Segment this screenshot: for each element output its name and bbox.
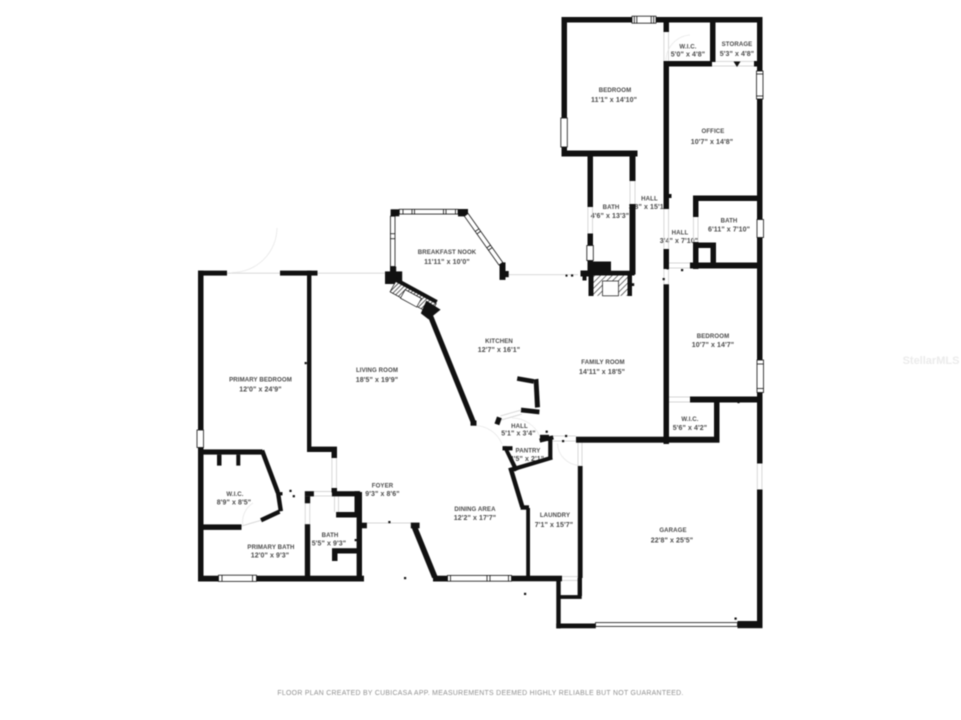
svg-text:STORAGE: STORAGE bbox=[722, 41, 753, 48]
svg-text:18'5" x 19'9": 18'5" x 19'9" bbox=[356, 377, 398, 384]
svg-text:6'11" x 7'10": 6'11" x 7'10" bbox=[708, 227, 750, 234]
svg-text:GARAGE: GARAGE bbox=[659, 527, 686, 534]
svg-text:BREAKFAST NOOK: BREAKFAST NOOK bbox=[418, 249, 477, 256]
svg-text:11'1" x 14'10": 11'1" x 14'10" bbox=[591, 97, 637, 104]
svg-text:4'6" x 13'3": 4'6" x 13'3" bbox=[591, 213, 629, 220]
svg-text:5'6" x 4'2": 5'6" x 4'2" bbox=[673, 425, 707, 432]
svg-text:LAUNDRY: LAUNDRY bbox=[540, 512, 570, 519]
svg-text:PRIMARY BEDROOM: PRIMARY BEDROOM bbox=[229, 377, 292, 384]
svg-text:DINING AREA: DINING AREA bbox=[454, 506, 496, 513]
svg-text:5'1" x 3'4": 5'1" x 3'4" bbox=[501, 431, 535, 438]
svg-text:PANTRY: PANTRY bbox=[516, 448, 541, 455]
svg-text:FOYER: FOYER bbox=[372, 483, 394, 490]
svg-text:FAMILY ROOM: FAMILY ROOM bbox=[581, 359, 624, 366]
svg-text:3'4" x 7'10": 3'4" x 7'10" bbox=[660, 238, 698, 245]
svg-text:FLOOR PLAN CREATED BY CUBICASA: FLOOR PLAN CREATED BY CUBICASA APP. MEAS… bbox=[277, 690, 683, 697]
svg-text:12'0" x 24'9": 12'0" x 24'9" bbox=[239, 387, 281, 394]
svg-text:BEDROOM: BEDROOM bbox=[697, 333, 730, 340]
svg-text:LIVING ROOM: LIVING ROOM bbox=[356, 367, 398, 374]
svg-text:8'9" x 8'5": 8'9" x 8'5" bbox=[217, 500, 251, 507]
svg-text:10'7" x 14'8": 10'7" x 14'8" bbox=[691, 139, 733, 146]
svg-text:10'7" x 14'7": 10'7" x 14'7" bbox=[692, 342, 734, 349]
svg-text:5'5" x 9'3": 5'5" x 9'3" bbox=[312, 541, 346, 548]
svg-text:BATH: BATH bbox=[603, 204, 620, 211]
svg-text:11'11" x 10'0": 11'11" x 10'0" bbox=[424, 259, 470, 266]
svg-text:12'2" x 17'7": 12'2" x 17'7" bbox=[454, 515, 496, 522]
svg-text:5'0" x 4'8": 5'0" x 4'8" bbox=[671, 52, 705, 59]
svg-text:HALL: HALL bbox=[672, 230, 689, 237]
svg-text:9'3" x 8'6": 9'3" x 8'6" bbox=[365, 491, 399, 498]
svg-text:W.I.C.: W.I.C. bbox=[226, 491, 243, 498]
svg-text:KITCHEN: KITCHEN bbox=[485, 338, 513, 345]
svg-text:BEDROOM: BEDROOM bbox=[599, 87, 632, 94]
svg-text:OFFICE: OFFICE bbox=[702, 128, 725, 135]
svg-text:14'11" x 18'5": 14'11" x 18'5" bbox=[579, 369, 625, 376]
svg-text:W.I.C.: W.I.C. bbox=[681, 416, 698, 423]
svg-text:PRIMARY BATH: PRIMARY BATH bbox=[247, 544, 294, 551]
svg-text:5'3" x 4'8": 5'3" x 4'8" bbox=[720, 51, 754, 58]
svg-text:12'0" x 9'3": 12'0" x 9'3" bbox=[251, 553, 289, 560]
svg-text:W.I.C.: W.I.C. bbox=[679, 44, 696, 51]
svg-text:12'7" x 16'1": 12'7" x 16'1" bbox=[478, 347, 520, 354]
svg-text:StellarMLS: StellarMLS bbox=[903, 355, 960, 367]
svg-text:7'1" x 15'7": 7'1" x 15'7" bbox=[535, 522, 573, 529]
svg-text:HALL: HALL bbox=[641, 196, 658, 203]
svg-text:BATH: BATH bbox=[721, 218, 738, 225]
svg-text:BATH: BATH bbox=[322, 532, 339, 539]
svg-text:HALL: HALL bbox=[511, 423, 528, 430]
svg-text:22'8" x 25'5": 22'8" x 25'5" bbox=[651, 538, 693, 545]
